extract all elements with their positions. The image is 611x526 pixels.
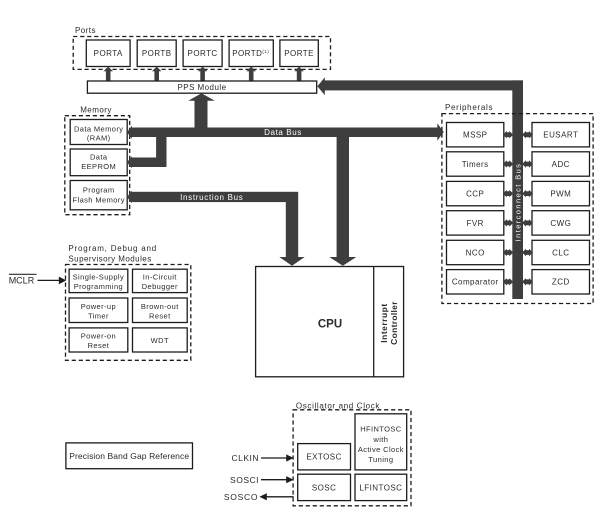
svg-text:EXTOSC: EXTOSC: [306, 453, 341, 462]
svg-text:Power-on: Power-on: [81, 332, 116, 341]
svg-text:Controller: Controller: [389, 301, 399, 345]
svg-text:Comparator: Comparator: [452, 278, 499, 287]
svg-text:Active Clock: Active Clock: [358, 445, 404, 454]
svg-text:Instruction Bus: Instruction Bus: [180, 193, 243, 202]
svg-text:ADC: ADC: [552, 160, 570, 169]
svg-text:Program: Program: [83, 186, 115, 195]
svg-text:Data Bus: Data Bus: [264, 128, 302, 137]
svg-text:SOSCI: SOSCI: [230, 475, 259, 485]
svg-text:Data Memory: Data Memory: [74, 124, 123, 133]
svg-text:Programming: Programming: [74, 282, 123, 291]
svg-text:Debugger: Debugger: [142, 282, 178, 291]
svg-text:Reset: Reset: [88, 341, 110, 350]
svg-text:FVR: FVR: [467, 219, 484, 228]
svg-text:EEPROM: EEPROM: [81, 162, 116, 171]
svg-text:CWG: CWG: [550, 219, 571, 228]
svg-text:Reset: Reset: [149, 311, 171, 320]
svg-text:Interrupt: Interrupt: [379, 303, 389, 342]
svg-text:CCP: CCP: [466, 190, 484, 199]
svg-text:Single-Supply: Single-Supply: [73, 273, 124, 282]
svg-text:with: with: [372, 435, 388, 444]
svg-text:CLKIN: CLKIN: [231, 453, 259, 463]
svg-text:Flash Memory: Flash Memory: [73, 195, 125, 204]
svg-text:NCO: NCO: [466, 248, 485, 257]
svg-text:CLC: CLC: [552, 248, 569, 257]
svg-text:Brown-out: Brown-out: [141, 302, 179, 311]
svg-text:(RAM): (RAM): [87, 134, 111, 143]
svg-text:SOSC: SOSC: [312, 483, 336, 492]
svg-text:Ports: Ports: [75, 26, 96, 35]
svg-text:SOSCO: SOSCO: [224, 492, 258, 502]
svg-text:Precision Band Gap Reference: Precision Band Gap Reference: [69, 451, 189, 461]
svg-text:MCLR: MCLR: [9, 275, 35, 285]
svg-text:PORTC: PORTC: [188, 49, 218, 58]
svg-text:Interconnect Bus: Interconnect Bus: [514, 163, 523, 242]
svg-text:PPS Module: PPS Module: [178, 83, 227, 92]
svg-text:Oscillator and Clock: Oscillator and Clock: [296, 401, 380, 410]
svg-text:Tuning: Tuning: [368, 455, 393, 464]
svg-text:LFINTOSC: LFINTOSC: [359, 483, 402, 492]
svg-text:HFINTOSC: HFINTOSC: [360, 425, 402, 434]
svg-text:CPU: CPU: [318, 318, 342, 330]
svg-text:Power-up: Power-up: [81, 302, 116, 311]
svg-text:Memory: Memory: [80, 105, 112, 114]
svg-text:In-Circuit: In-Circuit: [143, 273, 178, 282]
svg-text:PORTB: PORTB: [142, 49, 172, 58]
svg-text:Timers: Timers: [462, 160, 489, 169]
svg-text:PORTE: PORTE: [284, 49, 314, 58]
svg-text:EUSART: EUSART: [543, 131, 578, 140]
svg-text:Data: Data: [90, 152, 108, 161]
svg-text:PWM: PWM: [550, 190, 571, 199]
svg-text:Program, Debug and: Program, Debug and: [68, 244, 157, 253]
svg-text:ZCD: ZCD: [552, 278, 570, 287]
svg-text:Timer: Timer: [88, 311, 109, 320]
svg-text:Peripherals: Peripherals: [445, 103, 493, 112]
svg-text:PORTA: PORTA: [94, 49, 123, 58]
svg-text:MSSP: MSSP: [463, 131, 487, 140]
svg-text:WDT: WDT: [151, 336, 169, 345]
svg-text:Supervisory Modules: Supervisory Modules: [68, 254, 151, 263]
